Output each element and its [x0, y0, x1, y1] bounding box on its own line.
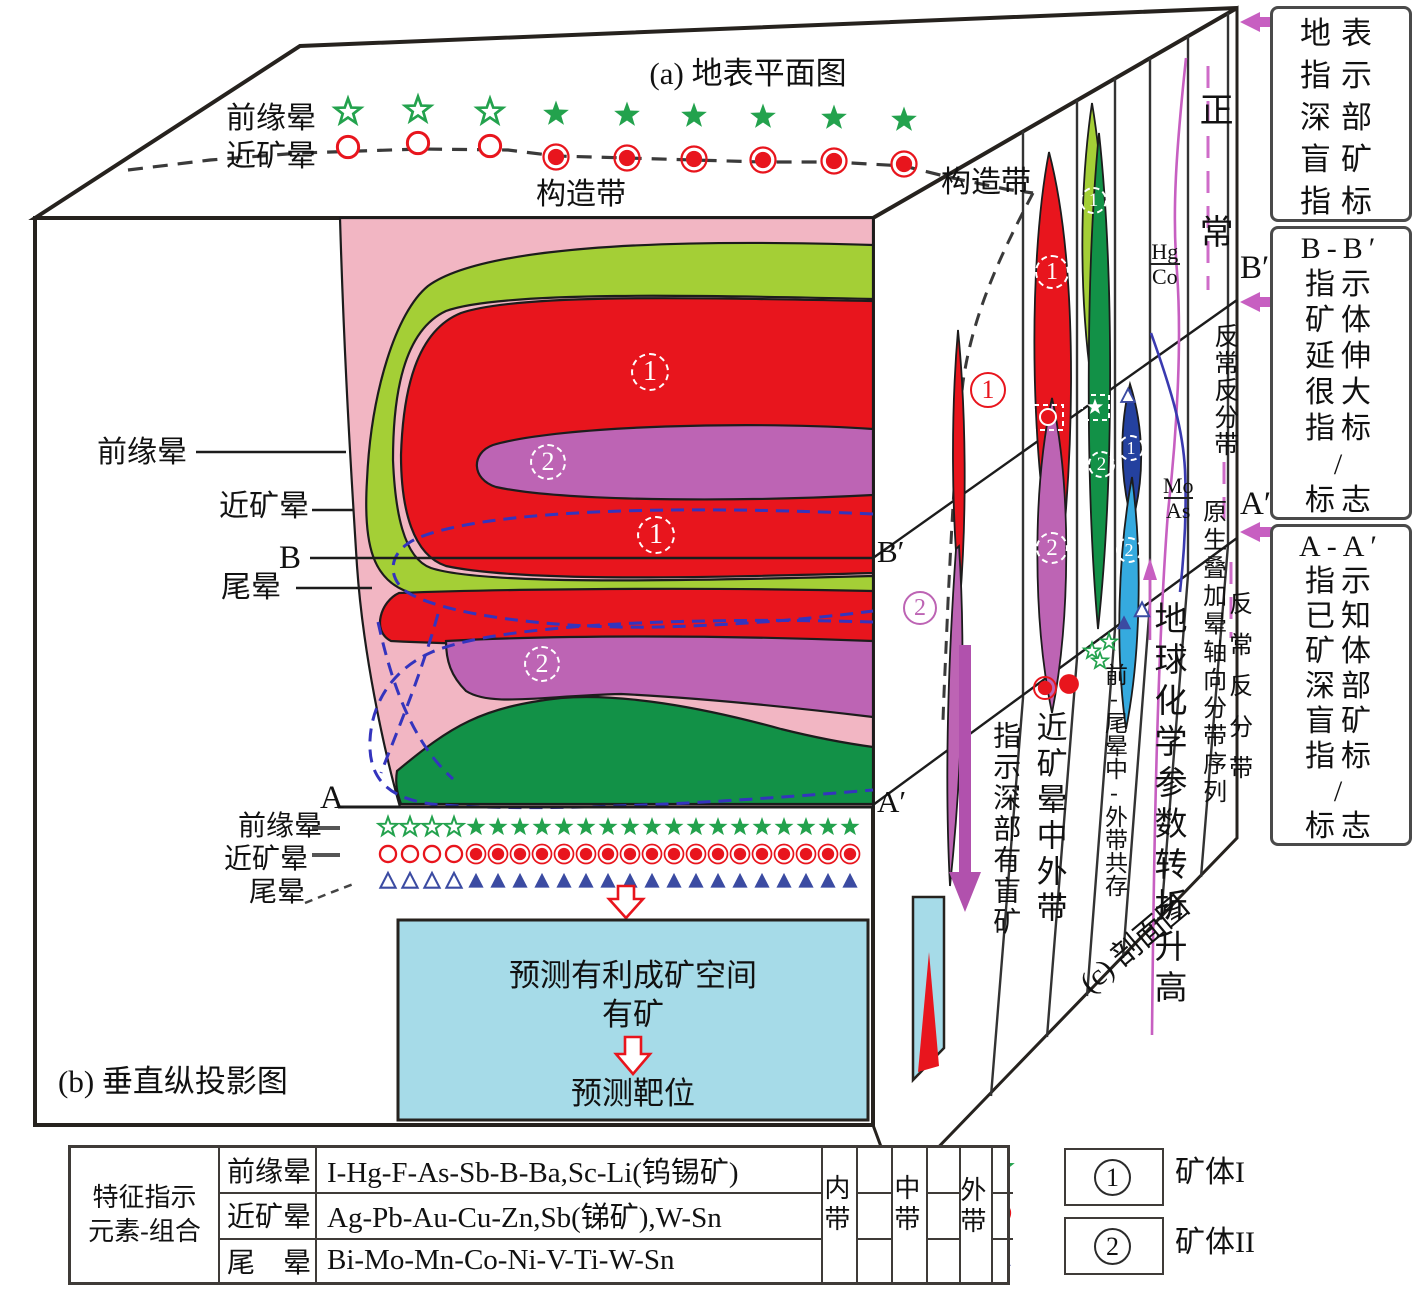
- ore-body-2-marker: 2: [524, 646, 560, 682]
- circ-icon: [479, 135, 500, 156]
- hg-label: Hg: [1151, 240, 1178, 263]
- ore-body-2-marker: 2: [1088, 451, 1115, 478]
- circ-icon: [402, 846, 418, 862]
- mo-label: Mo: [1163, 474, 1194, 497]
- table-row-halo: 尾 晕: [223, 1239, 315, 1282]
- bottom-front-halo-label: 前缘晕: [238, 811, 322, 843]
- ore-body-1-marker: 1: [631, 353, 669, 391]
- ore-body-1-marker: 1: [1118, 435, 1144, 461]
- sidebar-surface-indicator: 地表 指示 深部 盲矿 指标: [1270, 6, 1412, 222]
- near-halo-mid-outer-label: 近矿晕中外带: [1031, 711, 1067, 927]
- blind-ore-indicator-label: 指示深部有盲矿: [988, 721, 1020, 938]
- normal-zoning-label: 正常: [1193, 92, 1232, 336]
- front-tail-coexist-label: 前-尾晕中-外带共存: [1100, 663, 1126, 897]
- has-ore-label: 有矿: [483, 997, 783, 1033]
- table-row-elements: Ag-Pb-Au-Cu-Zn,Sb(锑矿),W-Sn: [327, 1193, 819, 1237]
- table-row-elements: I-Hg-F-As-Sb-B-Ba,Sc-Li(钨锡矿): [327, 1148, 819, 1192]
- point-Bprime-label: B′: [877, 534, 904, 570]
- title-projection: (b) 垂直纵投影图: [58, 1064, 288, 1100]
- halo-mass: [340, 218, 873, 807]
- title-surface-plan: (a) 地表平面图: [598, 56, 898, 92]
- prediction-space-label: 预测有利成矿空间: [483, 958, 783, 994]
- legend-ore2-label: 矿体II: [1175, 1226, 1255, 1261]
- circ-icon: [337, 136, 358, 157]
- legend-ore1-label: 矿体I: [1175, 1156, 1245, 1191]
- bottom-near-halo-label: 近矿晕: [224, 844, 308, 876]
- mo-as-ratio: Mo As: [1163, 474, 1194, 522]
- ore-body-1-marker: 1: [1035, 255, 1069, 289]
- zone-middle-label: 中带: [890, 1174, 920, 1236]
- ore-dot-icon: [1040, 409, 1056, 425]
- circ-icon: [424, 846, 440, 862]
- ore-body-2-marker: 2: [1116, 537, 1142, 563]
- element-combination-table: 特征指示 元素-组合 前缘晕 近矿晕 尾 晕 I-Hg-F-As-Sb-B-Ba…: [68, 1145, 1010, 1285]
- prediction-target-label: 预测靶位: [483, 1076, 783, 1112]
- surface-near-halo-label: 近矿晕: [226, 140, 316, 175]
- front-halo-label: 前缘晕: [97, 436, 187, 471]
- sidebar-BB-indicator: B-B′ 指示 矿体 延伸 很大 指标 / 标志: [1270, 226, 1412, 520]
- ore-body-2-marker: 2: [1036, 532, 1068, 564]
- circ-icon: [380, 846, 396, 862]
- structural-zone-label-section: 构造带: [941, 166, 1031, 201]
- table-row-halo: 近矿晕: [223, 1193, 315, 1237]
- ore-body-1-marker: 1: [637, 516, 675, 554]
- circ-icon: [407, 132, 428, 153]
- point-Aprime-label: A′: [877, 784, 906, 820]
- point-B-label: B: [279, 540, 301, 578]
- legend-ore1-marker: 1: [1094, 1159, 1131, 1196]
- hg-co-ratio: Hg Co: [1150, 240, 1180, 288]
- surface-front-halo-label: 前缘晕: [226, 102, 316, 137]
- as-label: As: [1164, 497, 1192, 522]
- figure-geochemical-halo-model: (a) 地表平面图 前缘晕 近矿晕 构造带 构造带 前缘晕 近矿晕 B 尾晕 B…: [0, 0, 1417, 1307]
- table-header: 特征指示 元素-组合: [71, 1148, 218, 1282]
- zone-inner-label: 内带: [820, 1174, 850, 1236]
- zone-outer-label: 外带: [956, 1176, 986, 1238]
- near-halo-label: 近矿晕: [219, 490, 309, 525]
- bottom-tail-halo-label: 尾晕: [249, 877, 305, 909]
- legend-ore2-marker: 2: [1094, 1228, 1131, 1265]
- table-row-elements: Bi-Mo-Mn-Co-Ni-V-Ti-W-Sn: [327, 1239, 819, 1282]
- abnormal-zoning-upper-label: 反常反分带: [1209, 323, 1238, 458]
- circ-icon: [1059, 674, 1079, 694]
- circ-icon: [446, 846, 462, 862]
- co-label: Co: [1150, 263, 1180, 288]
- ore-body-1-marker: 1: [1080, 187, 1107, 214]
- abnormal-zoning-lower-label: 反常反分带: [1223, 591, 1251, 796]
- point-A-label: A: [320, 780, 344, 818]
- structural-zone-label: 构造带: [536, 178, 626, 213]
- ore-body-2-marker: 2: [903, 591, 937, 625]
- table-row-halo: 前缘晕: [223, 1148, 315, 1192]
- section-Bprime-label: B′: [1240, 250, 1269, 288]
- tail-halo-label: 尾晕: [221, 571, 281, 606]
- ore-body-1-marker: 1: [970, 372, 1006, 408]
- section-Aprime-label: A′: [1240, 486, 1271, 524]
- ore-body-2-marker: 2: [530, 444, 566, 480]
- sidebar-AA-indicator: A-A′ 指示 已知 矿体 深部 盲矿 指标 / 标志: [1270, 524, 1412, 846]
- primary-zoning-sequence-label: 原生叠加晕轴向分带序列: [1197, 499, 1225, 807]
